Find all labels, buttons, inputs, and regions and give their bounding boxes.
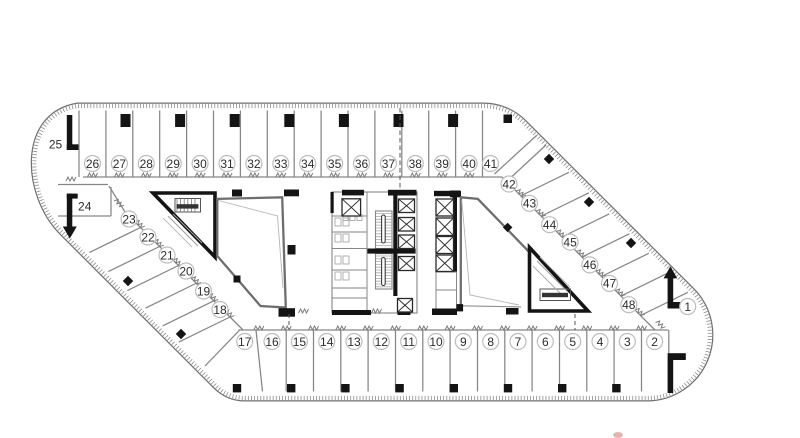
svg-text:46: 46 — [583, 258, 597, 272]
svg-text:40: 40 — [462, 157, 476, 171]
svg-text:45: 45 — [563, 235, 577, 249]
svg-text:18: 18 — [213, 303, 227, 317]
svg-text:38: 38 — [409, 157, 423, 171]
svg-text:9: 9 — [460, 335, 467, 349]
svg-text:1: 1 — [684, 300, 691, 314]
svg-text:6: 6 — [542, 335, 549, 349]
svg-text:4: 4 — [597, 335, 604, 349]
svg-text:25: 25 — [49, 137, 63, 151]
svg-text:28: 28 — [140, 157, 154, 171]
svg-text:44: 44 — [543, 218, 557, 232]
svg-text:35: 35 — [328, 157, 342, 171]
svg-text:8: 8 — [487, 335, 494, 349]
svg-text:3: 3 — [624, 335, 631, 349]
svg-text:31: 31 — [220, 157, 234, 171]
svg-text:11: 11 — [402, 335, 415, 349]
svg-text:42: 42 — [502, 177, 516, 191]
svg-text:39: 39 — [436, 157, 450, 171]
svg-text:23: 23 — [122, 212, 136, 226]
svg-text:7: 7 — [515, 335, 522, 349]
svg-text:36: 36 — [355, 157, 369, 171]
svg-text:29: 29 — [167, 157, 181, 171]
svg-text:19: 19 — [197, 284, 211, 298]
svg-text:21: 21 — [160, 248, 174, 262]
svg-text:33: 33 — [274, 157, 288, 171]
svg-text:37: 37 — [382, 157, 396, 171]
svg-text:5: 5 — [569, 335, 576, 349]
svg-text:13: 13 — [347, 335, 361, 349]
svg-text:32: 32 — [247, 157, 261, 171]
svg-text:30: 30 — [193, 157, 207, 171]
svg-text:43: 43 — [523, 197, 537, 211]
svg-text:22: 22 — [141, 230, 155, 244]
svg-text:17: 17 — [238, 335, 252, 349]
svg-text:34: 34 — [301, 157, 315, 171]
svg-text:12: 12 — [375, 335, 389, 349]
svg-text:16: 16 — [265, 335, 279, 349]
svg-text:48: 48 — [622, 298, 636, 312]
svg-text:27: 27 — [113, 157, 127, 171]
svg-text:10: 10 — [429, 335, 443, 349]
svg-text:20: 20 — [179, 264, 193, 278]
svg-text:47: 47 — [603, 277, 617, 291]
svg-text:24: 24 — [78, 199, 92, 213]
svg-text:41: 41 — [484, 157, 498, 171]
svg-text:14: 14 — [320, 335, 334, 349]
svg-text:26: 26 — [86, 157, 100, 171]
svg-text:15: 15 — [293, 335, 307, 349]
svg-text:2: 2 — [651, 335, 658, 349]
